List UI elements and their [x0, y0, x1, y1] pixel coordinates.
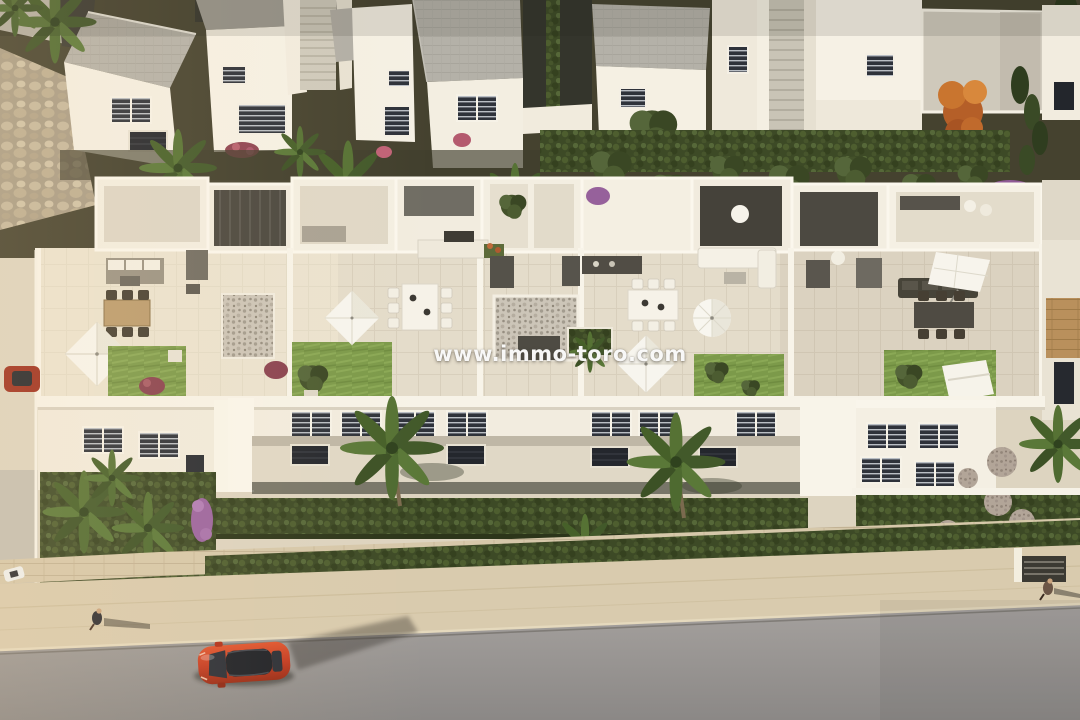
aerial-render: www.immo-toro.com [0, 0, 1080, 720]
watermark: www.immo-toro.com [433, 342, 686, 366]
